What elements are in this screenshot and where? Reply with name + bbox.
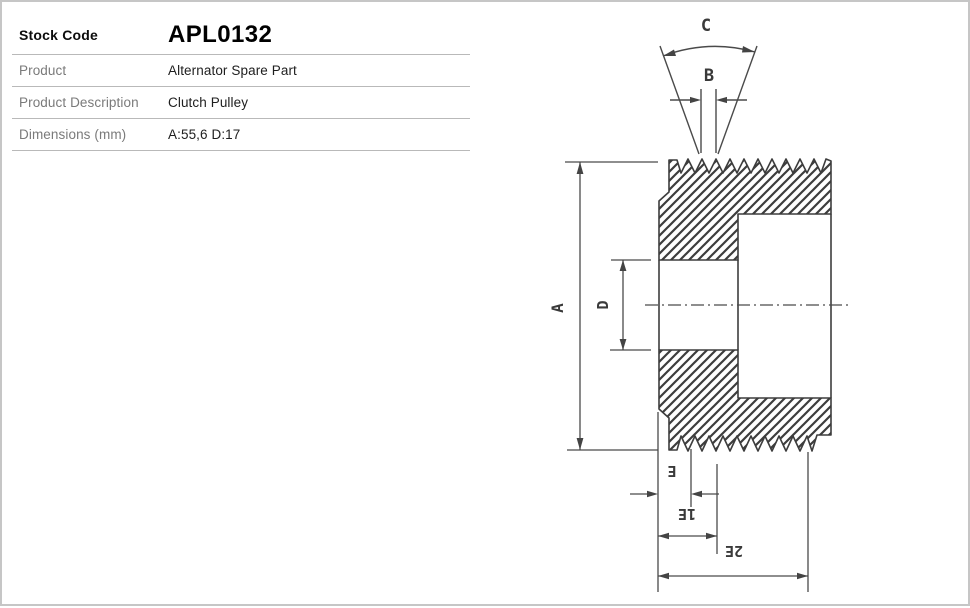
pulley-lower-section <box>659 350 831 451</box>
e-arrowhead-right <box>691 491 702 498</box>
e2-arrowhead-right <box>797 573 808 580</box>
a-arrowhead-down <box>577 438 584 450</box>
e2-arrowhead-left <box>658 573 669 580</box>
page: Stock Code APL0132 Product Alternator Sp… <box>0 0 970 606</box>
dimension-d <box>610 260 651 350</box>
e-arrowhead-left <box>647 491 658 498</box>
stock-code-value: APL0132 <box>168 21 272 49</box>
arc-arrowhead-left <box>663 50 676 57</box>
row-label: Product <box>12 63 168 78</box>
e1-arrowhead-left <box>658 533 669 540</box>
table-row-dimensions: Dimensions (mm) A:55,6 D:17 <box>12 119 470 151</box>
dimension-label-a: A <box>548 303 567 313</box>
b-arrowhead-right <box>716 97 727 103</box>
row-label: Dimensions (mm) <box>12 127 168 142</box>
row-label: Stock Code <box>12 27 168 43</box>
groove-detail <box>660 46 757 154</box>
table-row-product-description: Product Description Clutch Pulley <box>12 87 470 119</box>
dimension-label-b: B <box>704 66 714 86</box>
e-arrowheads <box>647 491 808 580</box>
dimensions-value: A:55,6 D:17 <box>168 127 240 142</box>
d-arrowhead-down <box>620 339 627 350</box>
clutch-pulley-technical-drawing: C B A D <box>542 2 970 608</box>
pulley-upper-section <box>659 159 831 260</box>
product-description-value: Clutch Pulley <box>168 95 248 110</box>
dimension-label-c: C <box>701 16 711 36</box>
dimension-label-d: D <box>594 300 612 309</box>
row-label: Product Description <box>12 95 168 110</box>
spec-table: Stock Code APL0132 Product Alternator Sp… <box>12 15 470 151</box>
dimension-label-e1: E1 <box>678 505 696 523</box>
product-value: Alternator Spare Part <box>168 63 297 78</box>
angle-arc-c <box>663 46 755 56</box>
d-arrowhead-up <box>620 260 627 271</box>
e1-arrowhead-right <box>706 533 717 540</box>
arc-arrowhead-right <box>742 46 755 53</box>
a-arrowhead-up <box>577 162 584 174</box>
dimension-label-e: E <box>667 462 676 480</box>
b-arrowhead-left <box>690 97 701 103</box>
dimension-label-e2: E2 <box>725 542 743 560</box>
table-row-stock-code: Stock Code APL0132 <box>12 15 470 55</box>
table-row-product: Product Alternator Spare Part <box>12 55 470 87</box>
